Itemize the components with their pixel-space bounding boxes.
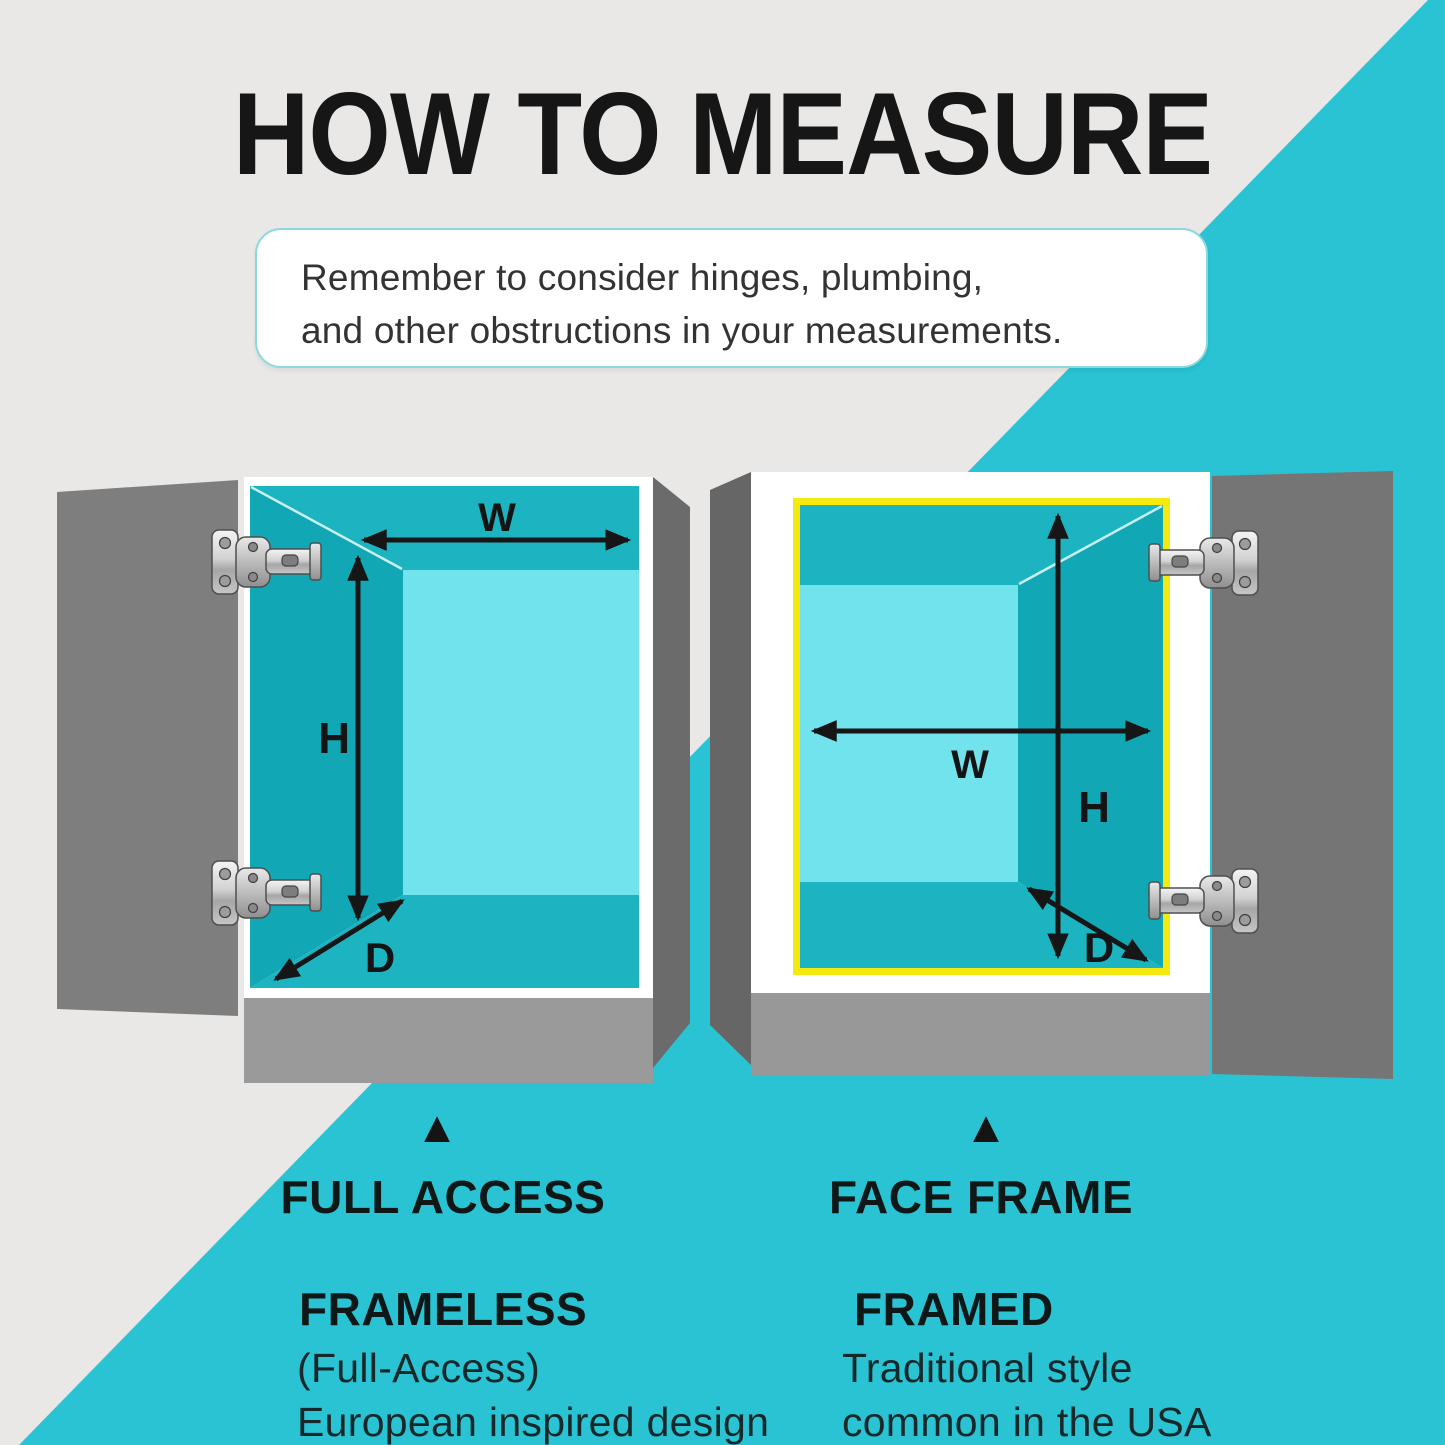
left-cabinet-style-name: FRAMELESS <box>299 1286 587 1332</box>
page-title: HOW TO MEASURE <box>0 76 1445 193</box>
right-width-label: W <box>951 743 989 787</box>
left-width-label: W <box>478 496 516 540</box>
diagram-scene: W H D W H D <box>0 0 1445 1445</box>
left-cabinet-description-line-1: (Full-Access) <box>297 1346 540 1391</box>
right-cabinet-heading: FACE FRAME <box>820 1174 1142 1220</box>
face-frame-cabinet-illustration: W H D <box>710 471 1393 1079</box>
right-height-label: H <box>1078 783 1110 832</box>
right-cabinet-style-name: FRAMED <box>854 1286 1054 1332</box>
right-pointer-triangle: ▲ <box>960 1106 1012 1150</box>
left-cabinet-door <box>57 480 238 1016</box>
note-text: Remember to consider hinges, plumbing, a… <box>301 251 1063 357</box>
right-cabinet-side-panel <box>710 472 751 1065</box>
right-depth-label: D <box>1084 924 1114 971</box>
frameless-cabinet-illustration: W H D <box>57 477 690 1083</box>
left-height-label: H <box>318 714 350 763</box>
left-cabinet-side-panel <box>653 477 690 1068</box>
right-cabinet-description-line-2: common in the USA <box>842 1400 1212 1445</box>
left-pointer-triangle: ▲ <box>411 1106 463 1150</box>
left-depth-label: D <box>365 934 395 981</box>
right-cabinet-base <box>751 993 1210 1075</box>
left-cabinet-description-line-2: European inspired design <box>297 1400 769 1445</box>
left-cabinet-heading: FULL ACCESS <box>280 1174 606 1220</box>
note-card: Remember to consider hinges, plumbing, a… <box>255 228 1208 368</box>
note-line-2: and other obstructions in your measureme… <box>301 304 1063 357</box>
note-line-1: Remember to consider hinges, plumbing, <box>301 251 1063 304</box>
left-interior-back-panel <box>403 570 639 895</box>
right-cabinet-description-line-1: Traditional style <box>842 1346 1133 1391</box>
infographic-page: W H D W H D <box>0 0 1445 1445</box>
left-cabinet-base <box>244 998 653 1083</box>
